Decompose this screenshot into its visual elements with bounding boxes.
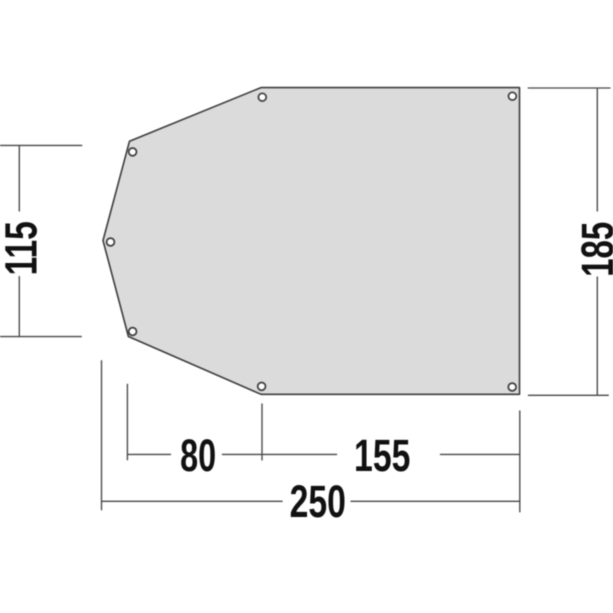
svg-text:80: 80 [180,432,216,481]
svg-text:115: 115 [0,221,47,275]
svg-text:250: 250 [290,478,346,528]
svg-text:155: 155 [354,431,410,481]
svg-text:185: 185 [573,222,613,277]
